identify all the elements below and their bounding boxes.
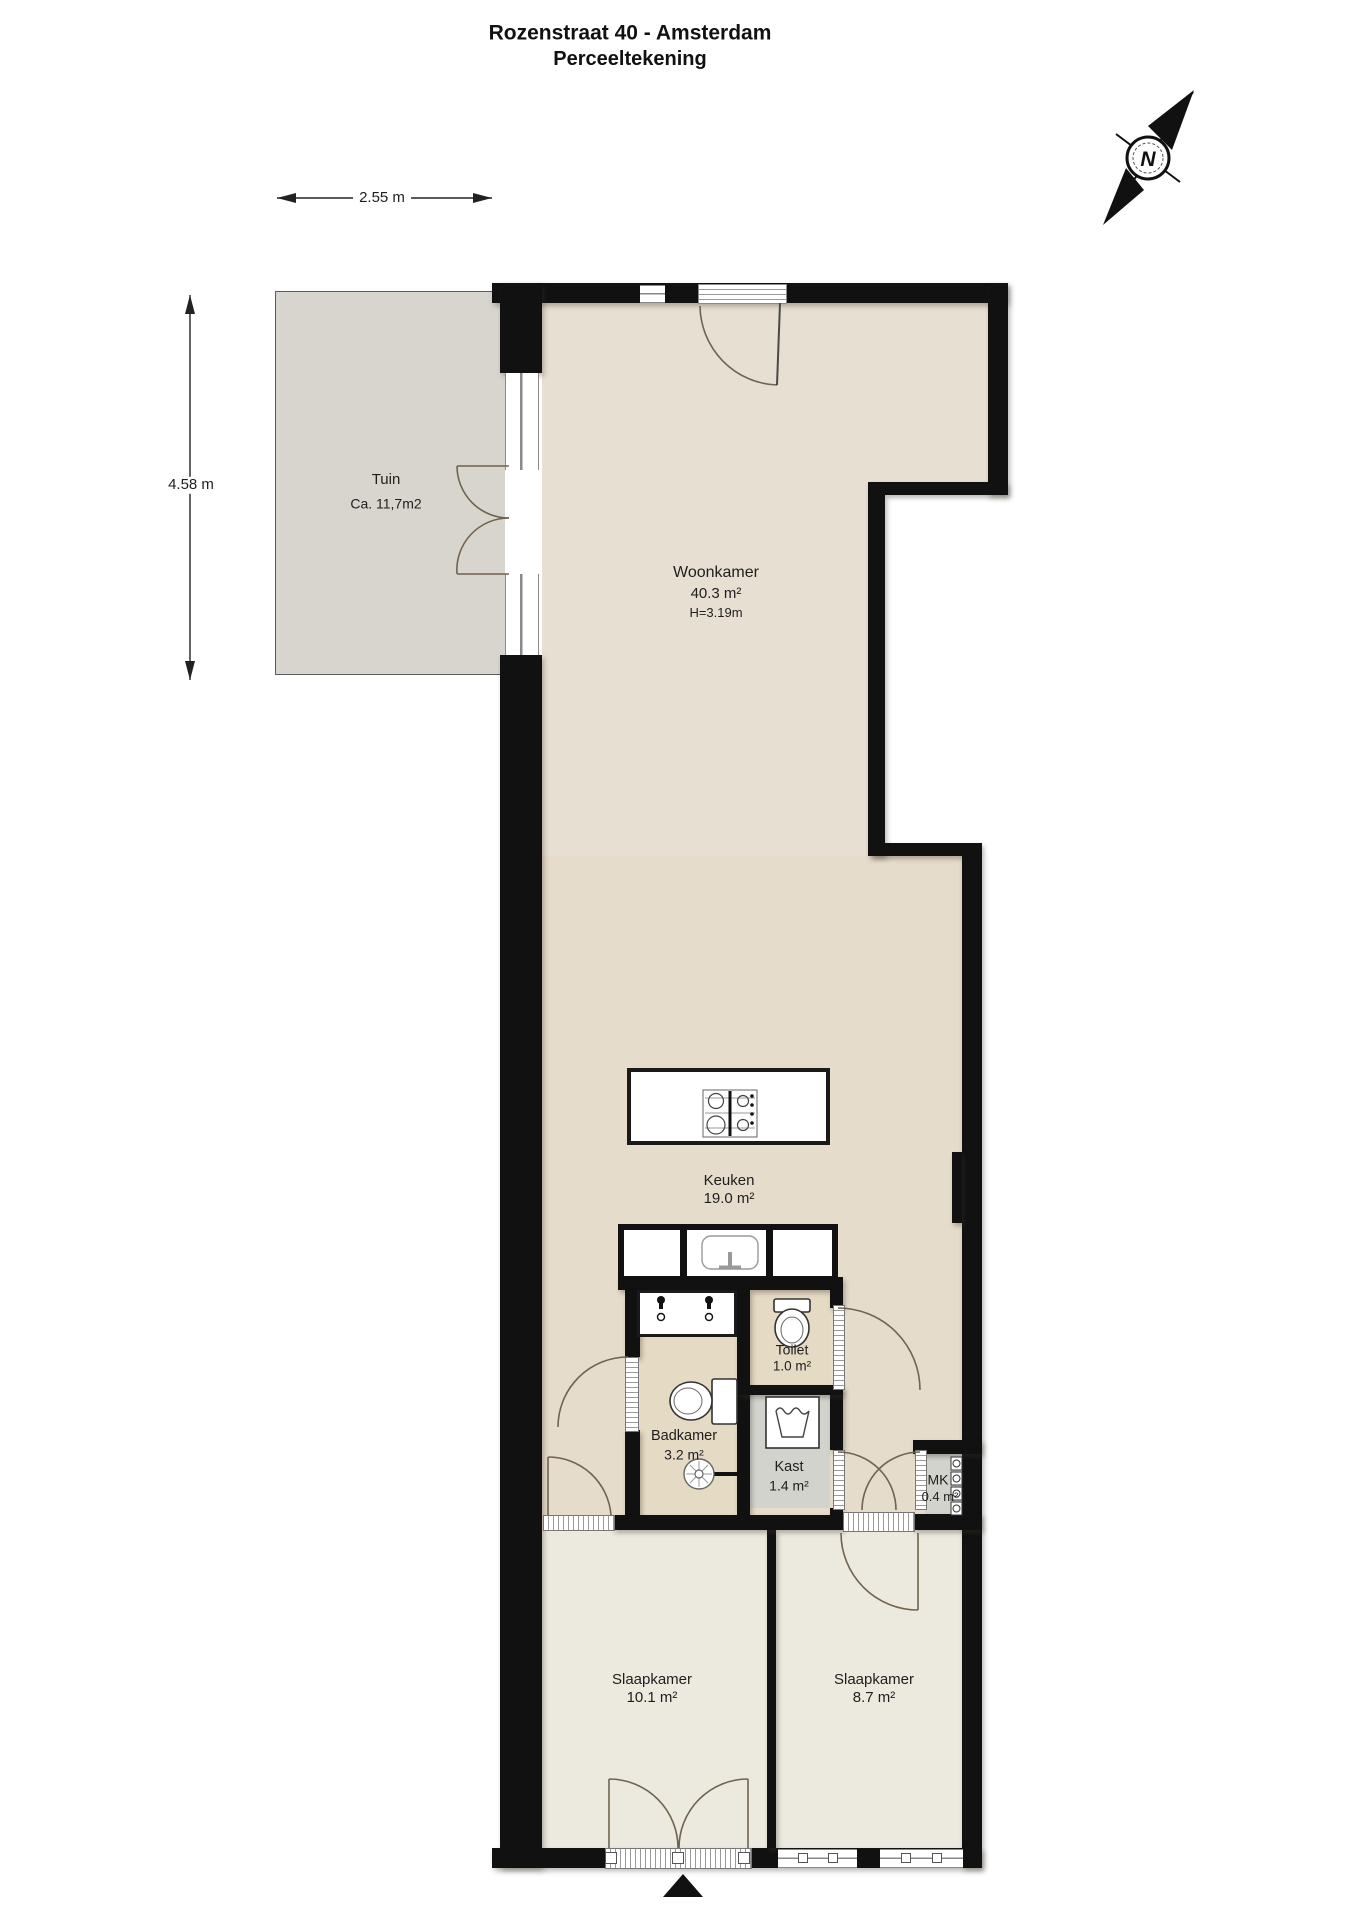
stove-icon xyxy=(703,1090,757,1137)
entrance-arrow-icon xyxy=(663,1874,703,1897)
compass-north-label: N xyxy=(1140,148,1156,171)
woonkamer-height-label: H=3.19m xyxy=(689,606,742,620)
woonkamer-label: Woonkamer xyxy=(673,564,759,582)
french-door-arc xyxy=(679,1779,748,1848)
toilet-label: Toilet xyxy=(776,1342,809,1357)
keuken-area-label: 19.0 m² xyxy=(704,1191,755,1208)
mk-label: MK xyxy=(928,1472,949,1487)
toilet-area-label: 1.0 m² xyxy=(773,1360,811,1375)
tuin-area-label: Ca. 11,7m2 xyxy=(350,496,421,511)
kitchen-sink-icon xyxy=(702,1236,758,1269)
slaapkamer2-label: Slaapkamer xyxy=(834,1672,914,1689)
wc-toilet-icon xyxy=(774,1299,810,1347)
keuken-label: Keuken xyxy=(704,1173,755,1190)
page-subtitle: Perceeltekening xyxy=(553,48,706,70)
toilet-door-arc xyxy=(838,1308,920,1390)
plan-linework: N xyxy=(0,0,1358,1920)
slaapkamer1-door-arc xyxy=(548,1457,611,1515)
mk-area-label: 0.4 m² xyxy=(922,1490,959,1504)
slaapkamer2-area-label: 8.7 m² xyxy=(853,1690,896,1707)
badkamer-area-label: 3.2 m² xyxy=(664,1447,704,1462)
dimension-width-label: 2.55 m xyxy=(353,190,411,207)
tuin-label: Tuin xyxy=(372,472,401,489)
woonkamer-area-label: 40.3 m² xyxy=(691,586,742,603)
kast-door-arc xyxy=(838,1452,896,1510)
tuin-door-arc xyxy=(457,518,509,574)
shower-icon xyxy=(684,1459,737,1489)
washing-machine-icon xyxy=(766,1397,819,1448)
compass-icon: N xyxy=(1103,90,1194,225)
badkamer-label: Badkamer xyxy=(651,1429,717,1445)
slaapkamer1-label: Slaapkamer xyxy=(612,1672,692,1689)
tuin-door-arc xyxy=(457,466,509,518)
vanity-tap-icons xyxy=(657,1296,713,1321)
slaapkamer1-area-label: 10.1 m² xyxy=(627,1690,678,1707)
kast-label: Kast xyxy=(774,1460,803,1476)
electric-meters-icon xyxy=(951,1457,962,1515)
page-title: Rozenstraat 40 - Amsterdam xyxy=(489,21,772,44)
kast-area-label: 1.4 m² xyxy=(769,1478,809,1493)
dimension-height-label: 4.58 m xyxy=(162,477,220,494)
entry-door-arc xyxy=(700,306,777,385)
french-door-arc xyxy=(609,1779,678,1848)
floorplan-page: N Rozenstraat 40 - Amsterdam Perceelteke… xyxy=(0,0,1358,1920)
slaapkamer2-door-arc xyxy=(841,1533,918,1610)
mk-door-arc xyxy=(862,1452,920,1510)
badkamer-door-arc xyxy=(558,1357,628,1427)
badkamer-toilet-icon xyxy=(670,1379,737,1424)
entry-door-line xyxy=(777,303,780,385)
